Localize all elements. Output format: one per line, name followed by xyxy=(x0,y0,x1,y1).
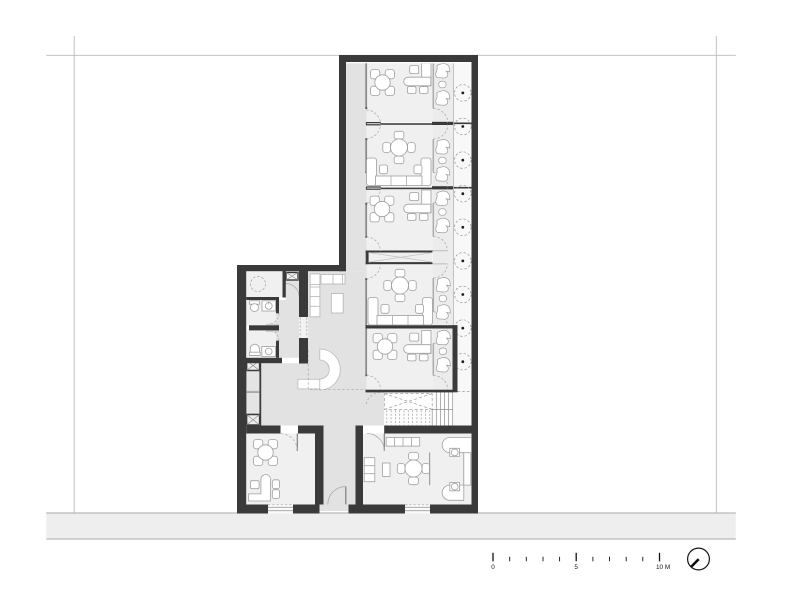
svg-text:5: 5 xyxy=(574,564,578,571)
svg-text:10 M: 10 M xyxy=(656,564,670,571)
svg-text:0: 0 xyxy=(491,564,495,571)
